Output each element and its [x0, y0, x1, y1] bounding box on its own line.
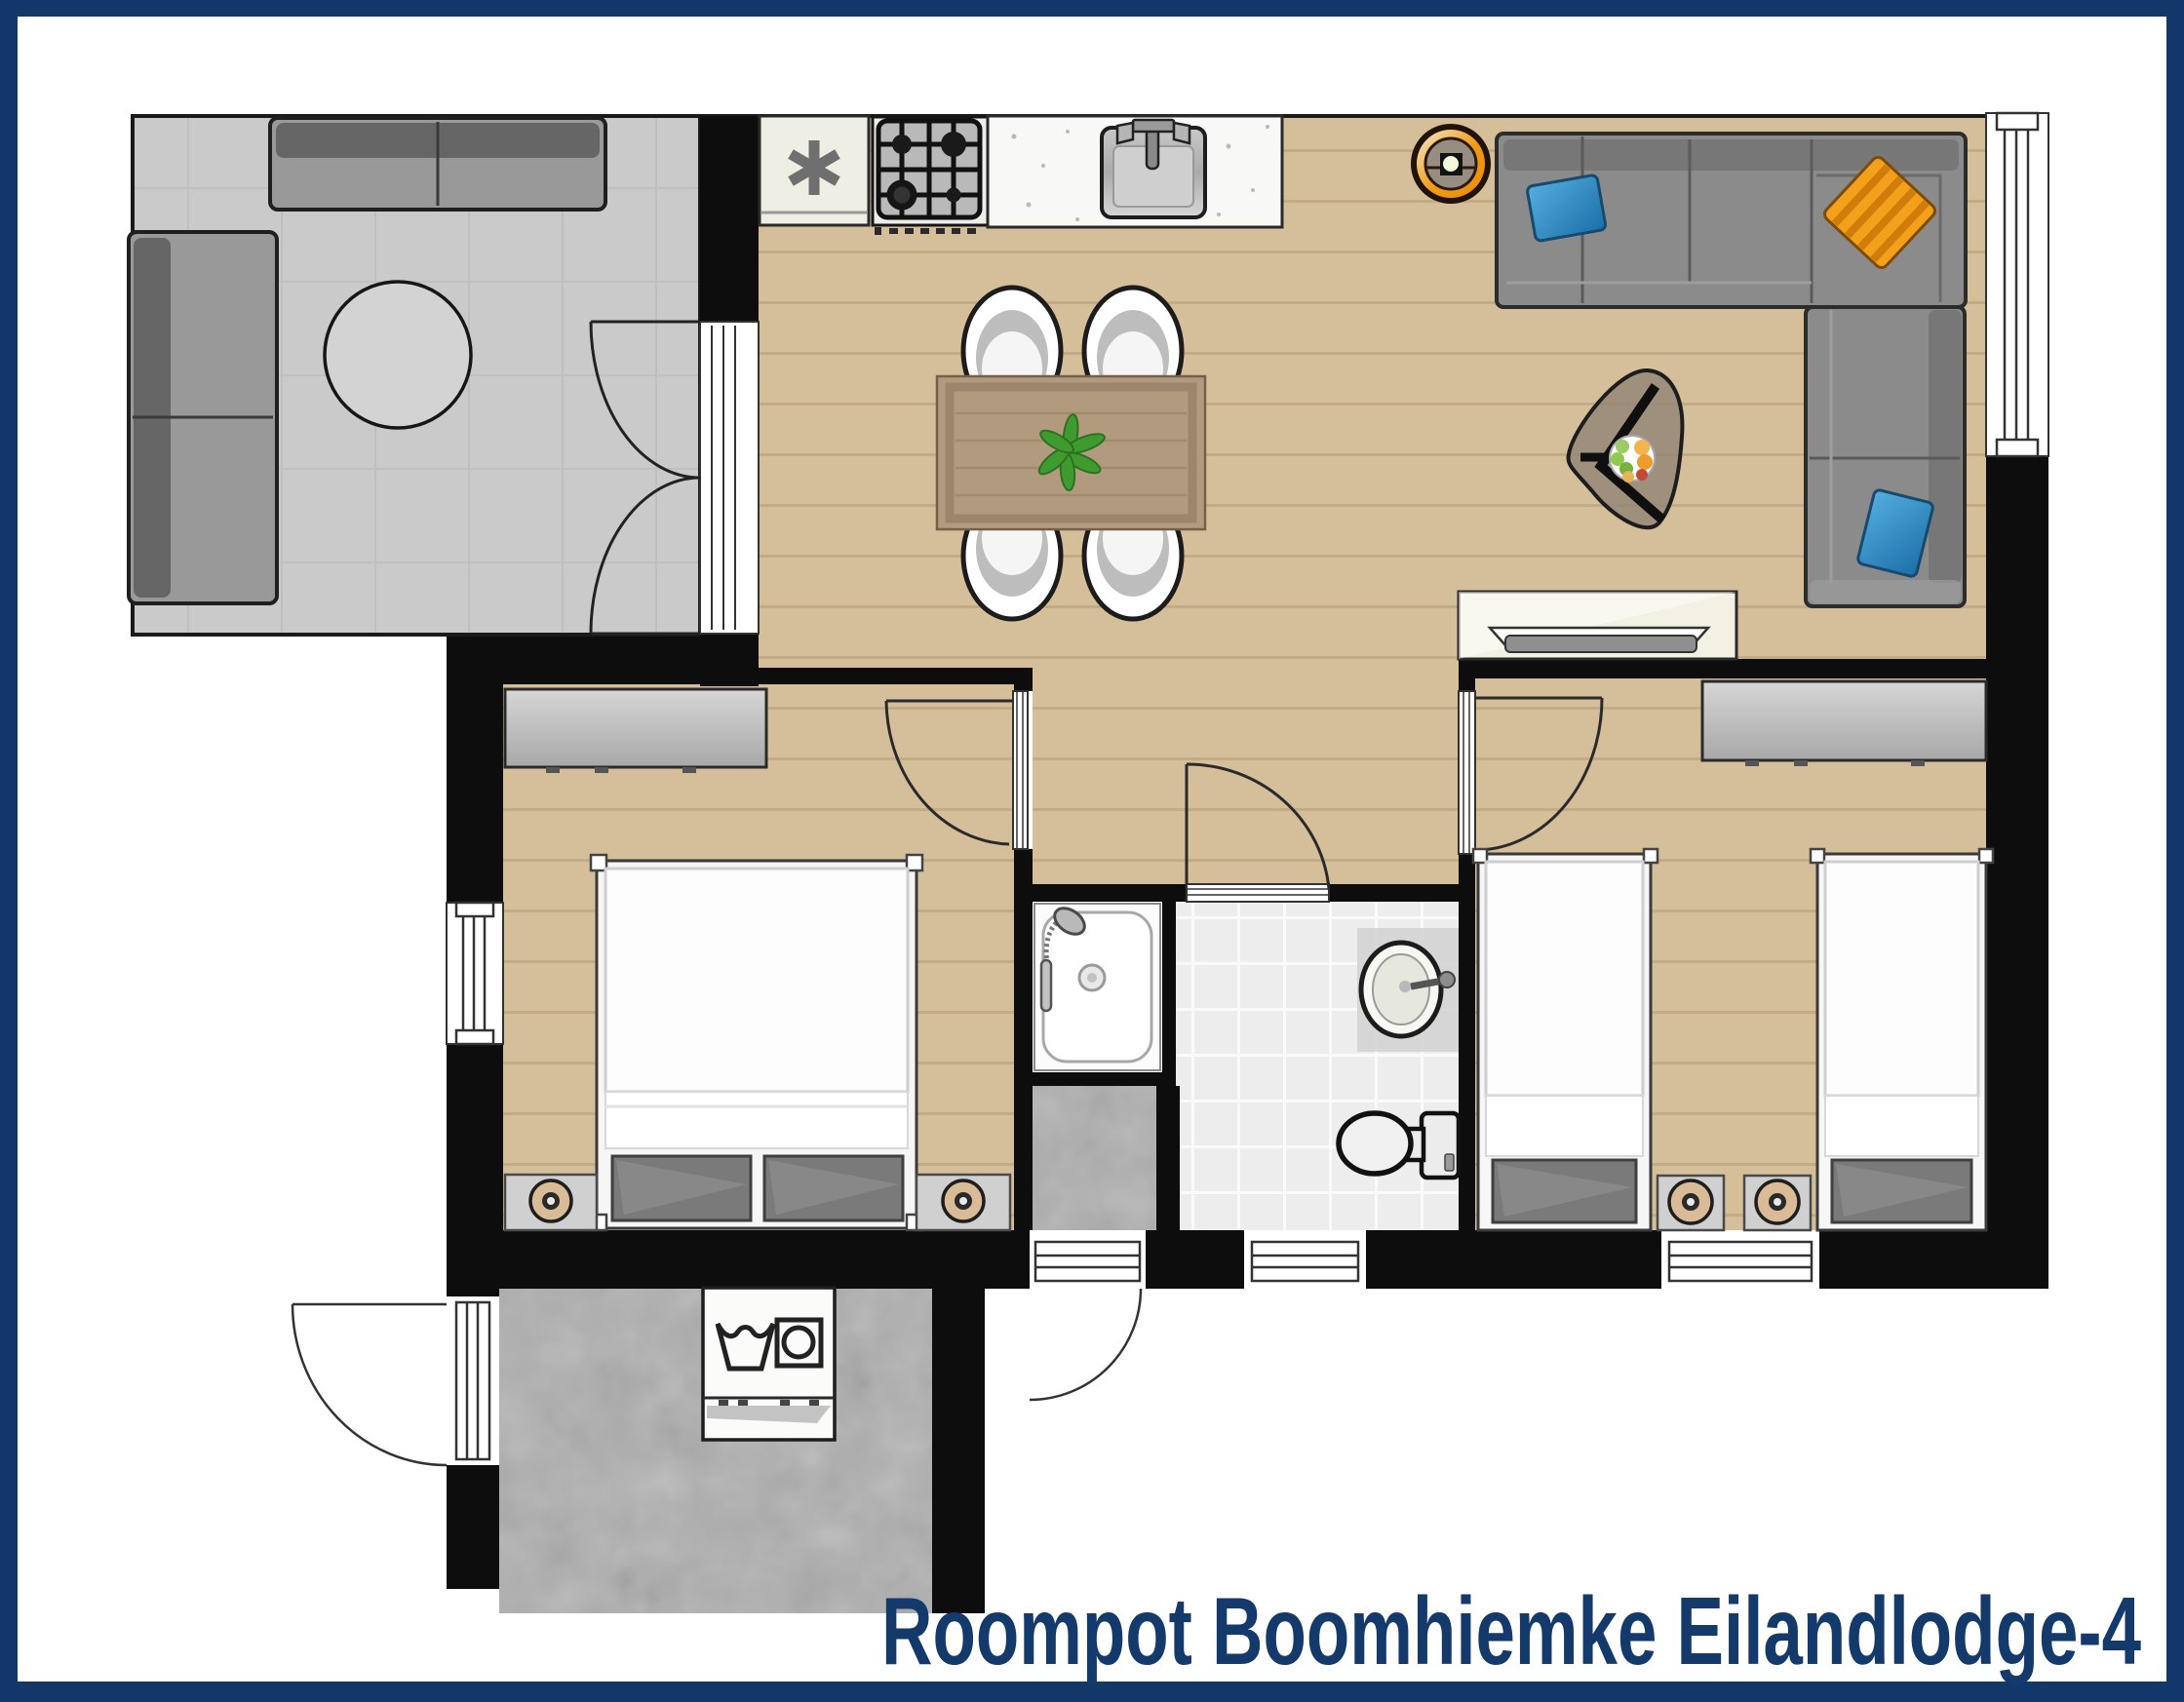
svg-text:Roompot Boomhiemke Eilandlodge: Roompot Boomhiemke Eilandlodge-4	[881, 1577, 2141, 1684]
